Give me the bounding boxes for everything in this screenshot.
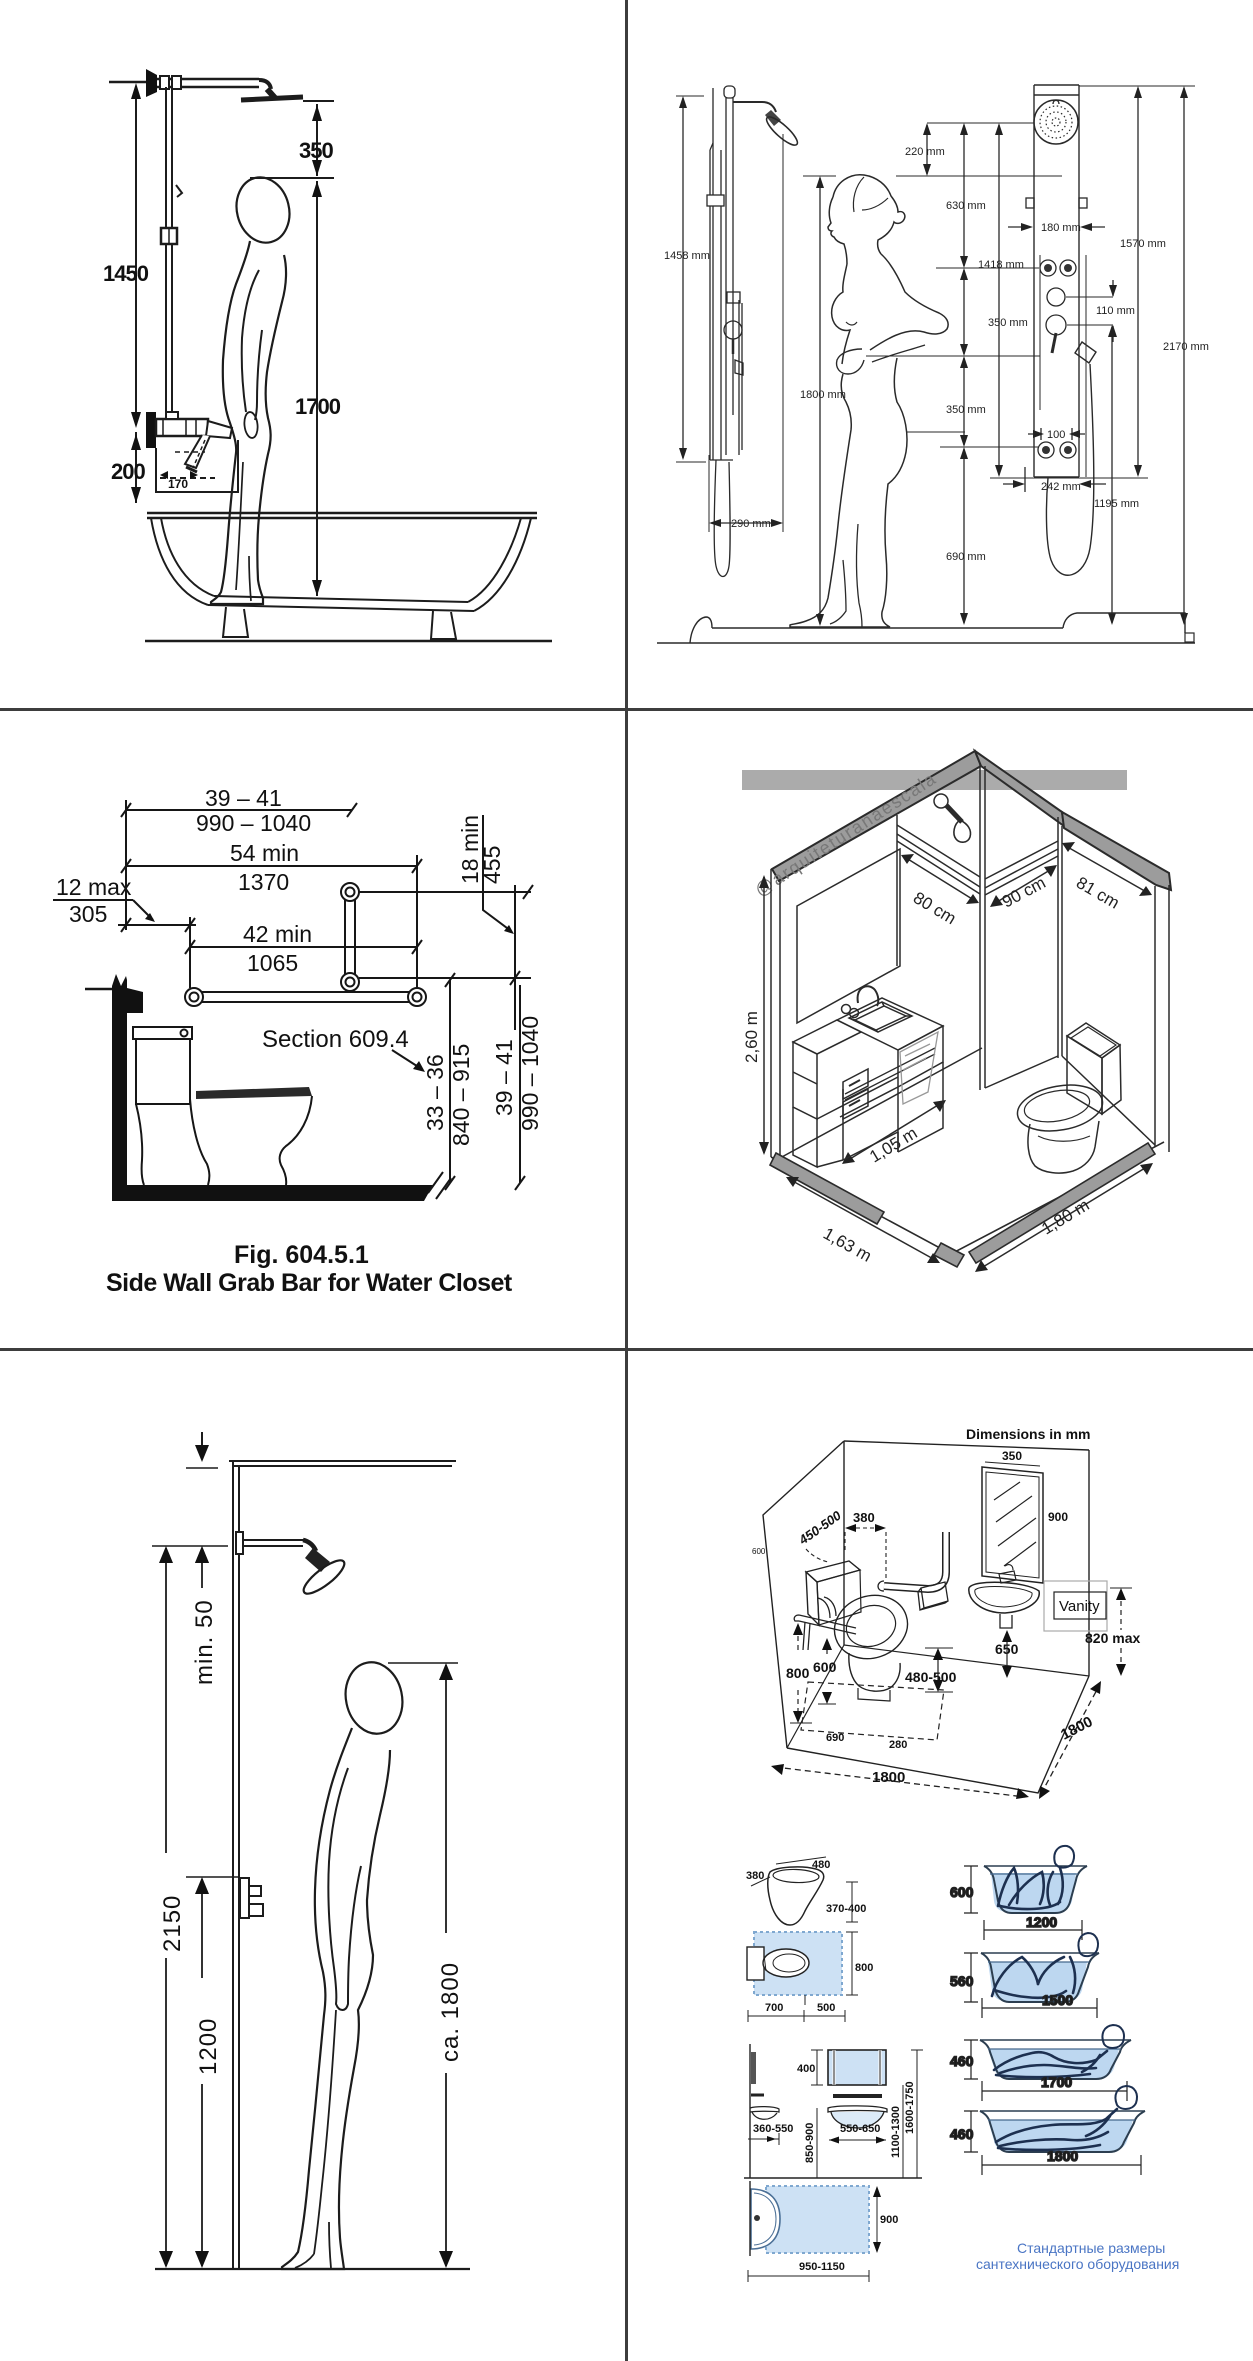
svg-text:1200: 1200 xyxy=(195,2018,222,2075)
svg-text:690 mm: 690 mm xyxy=(946,551,986,563)
svg-text:90 cm: 90 cm xyxy=(999,873,1049,912)
svg-text:80 cm: 80 cm xyxy=(910,888,959,928)
svg-text:1800: 1800 xyxy=(872,1769,905,1786)
svg-text:350 mm: 350 mm xyxy=(946,404,986,416)
svg-text:1195 mm: 1195 mm xyxy=(1094,498,1139,510)
svg-text:1450: 1450 xyxy=(103,261,149,286)
svg-text:2170 mm: 2170 mm xyxy=(1163,341,1209,353)
svg-text:1800 mm: 1800 mm xyxy=(800,389,846,401)
svg-text:380: 380 xyxy=(853,1510,875,1525)
svg-text:1500: 1500 xyxy=(1042,1992,1073,2008)
svg-text:54 min: 54 min xyxy=(230,840,299,866)
svg-text:900: 900 xyxy=(1048,1510,1068,1524)
svg-text:33 – 36: 33 – 36 xyxy=(422,1054,448,1131)
svg-text:990 – 1040: 990 – 1040 xyxy=(517,1016,543,1131)
svg-text:450-500: 450-500 xyxy=(795,1507,844,1548)
svg-text:820 max: 820 max xyxy=(1085,1630,1140,1646)
svg-text:220 mm: 220 mm xyxy=(905,146,945,158)
svg-text:350: 350 xyxy=(299,138,333,163)
svg-text:1370: 1370 xyxy=(238,869,289,895)
svg-text:81 cm: 81 cm xyxy=(1073,873,1123,913)
svg-text:1,63 m: 1,63 m xyxy=(820,1224,875,1266)
svg-text:305: 305 xyxy=(69,901,107,927)
svg-text:900: 900 xyxy=(880,2214,898,2226)
svg-text:Fig. 604.5.1: Fig. 604.5.1 xyxy=(234,1241,369,1269)
svg-text:1570 mm: 1570 mm xyxy=(1120,238,1166,250)
svg-text:690: 690 xyxy=(826,1732,844,1744)
svg-text:1700: 1700 xyxy=(295,394,341,419)
svg-text:1065: 1065 xyxy=(247,950,298,976)
svg-text:550-650: 550-650 xyxy=(840,2123,880,2135)
svg-text:850-900: 850-900 xyxy=(804,2123,816,2163)
svg-text:2150: 2150 xyxy=(159,1895,186,1952)
svg-text:600: 600 xyxy=(752,1547,766,1556)
svg-text:1800: 1800 xyxy=(1058,1713,1095,1743)
svg-text:1458 mm: 1458 mm xyxy=(664,250,710,262)
svg-text:39 – 41: 39 – 41 xyxy=(205,785,282,811)
svg-text:1100-1300: 1100-1300 xyxy=(890,2106,902,2158)
svg-text:560: 560 xyxy=(950,1973,974,1989)
svg-text:380: 380 xyxy=(746,1870,764,1882)
svg-text:350 mm: 350 mm xyxy=(988,317,1028,329)
svg-text:42 min: 42 min xyxy=(243,921,312,947)
svg-text:242 mm: 242 mm xyxy=(1041,481,1081,493)
svg-text:350: 350 xyxy=(1002,1449,1022,1463)
svg-text:600: 600 xyxy=(950,1884,974,1900)
svg-text:Vanity: Vanity xyxy=(1059,1598,1100,1615)
svg-text:39 – 41: 39 – 41 xyxy=(491,1039,517,1116)
svg-text:600: 600 xyxy=(813,1659,837,1675)
svg-text:480: 480 xyxy=(812,1859,830,1871)
svg-text:min. 50: min. 50 xyxy=(191,1599,218,1685)
svg-text:1600-1750: 1600-1750 xyxy=(904,2081,916,2134)
svg-text:700: 700 xyxy=(765,2002,783,2014)
svg-text:1200: 1200 xyxy=(1026,1914,1057,1930)
svg-text:ca. 1800: ca. 1800 xyxy=(437,1962,464,2062)
svg-text:100: 100 xyxy=(1047,429,1065,441)
svg-text:500: 500 xyxy=(817,2002,835,2014)
svg-text:630 mm: 630 mm xyxy=(946,200,986,212)
svg-text:1700: 1700 xyxy=(1041,2074,1072,2090)
svg-text:сантехнического оборудования: сантехнического оборудования xyxy=(976,2256,1179,2272)
svg-text:800: 800 xyxy=(786,1665,810,1681)
svg-text:180 mm: 180 mm xyxy=(1041,222,1081,234)
svg-text:990 – 1040: 990 – 1040 xyxy=(196,810,311,836)
svg-text:800: 800 xyxy=(855,1962,873,1974)
svg-text:950-1150: 950-1150 xyxy=(799,2261,845,2273)
svg-text:480-500: 480-500 xyxy=(905,1669,957,1685)
svg-text:Dimensions in mm: Dimensions in mm xyxy=(966,1426,1090,1442)
svg-text:Стандартные размеры: Стандартные размеры xyxy=(1017,2240,1165,2256)
svg-text:170: 170 xyxy=(168,477,188,491)
svg-text:290 mm: 290 mm xyxy=(731,518,771,530)
svg-text:1800: 1800 xyxy=(1047,2148,1078,2164)
svg-text:460: 460 xyxy=(950,2126,974,2142)
svg-text:12 max: 12 max xyxy=(56,874,132,900)
svg-text:400: 400 xyxy=(797,2063,815,2075)
svg-text:460: 460 xyxy=(950,2053,974,2069)
svg-text:200: 200 xyxy=(111,459,145,484)
svg-text:Section 609.4: Section 609.4 xyxy=(262,1026,409,1053)
svg-text:110 mm: 110 mm xyxy=(1096,305,1135,317)
svg-text:370-400: 370-400 xyxy=(826,1903,866,1915)
svg-text:360-550: 360-550 xyxy=(753,2123,793,2135)
svg-text:280: 280 xyxy=(889,1739,907,1751)
svg-text:2,60 m: 2,60 m xyxy=(742,1011,761,1063)
svg-text:Side Wall Grab Bar for Water C: Side Wall Grab Bar for Water Closet xyxy=(106,1269,513,1297)
svg-text:1418 mm: 1418 mm xyxy=(978,259,1024,271)
svg-text:840 – 915: 840 – 915 xyxy=(448,1044,474,1146)
